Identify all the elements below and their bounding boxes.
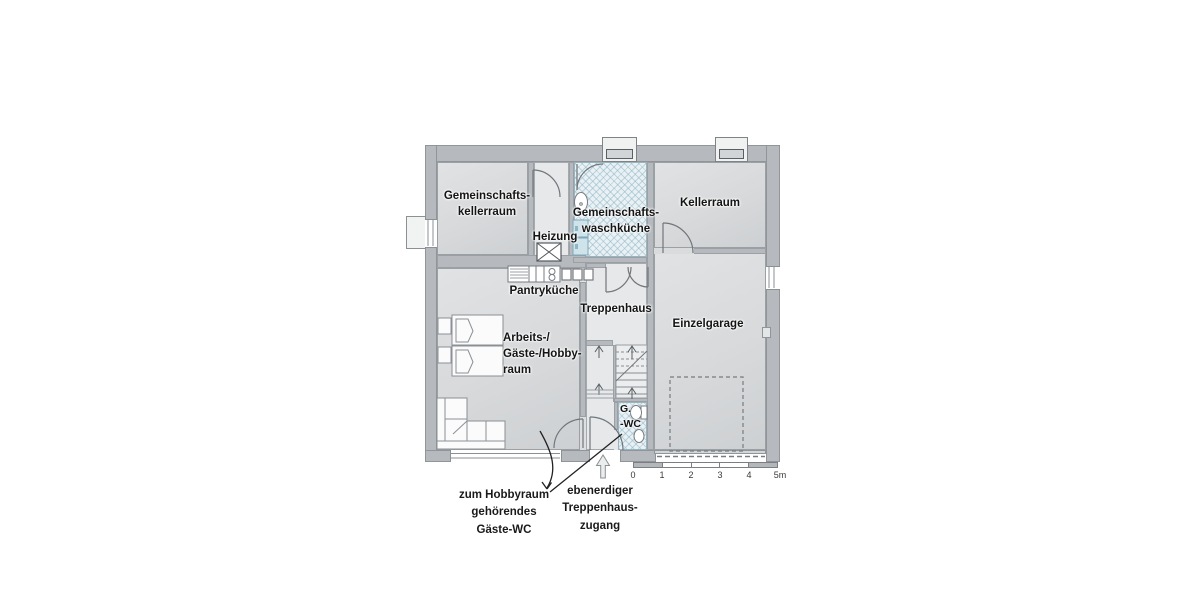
light-shaft-left [406,216,426,249]
room-label-heizung: Heizung [533,230,578,246]
scale-tick-2: 2 [688,470,693,480]
room-label-treppenhaus: Treppenhaus [580,302,652,318]
scale-bar [633,462,778,468]
scale-tick-4: 4 [746,470,751,480]
room-label-kellerraum: Kellerraum [680,196,740,212]
window-bottom [450,450,562,462]
scale-tick-1: 1 [659,470,664,480]
annotation-wc-note: zum Hobbyraum gehörendes Gäste-WC [459,487,549,539]
wall-stair-divider [613,345,616,402]
room-label-gaeste-wc: G. -WC [620,402,641,432]
scale-segment [692,463,721,467]
scale-tick-3: 3 [717,470,722,480]
wall-stair-stub [586,340,613,346]
wall-waschkueche-bottom [573,257,647,263]
wall-kellerraum-garage [654,248,766,254]
entrance-opening [590,450,620,462]
scale-tick-0: 0 [630,470,635,480]
annotation-entry-note: ebenerdiger Treppenhaus- zugang [562,483,637,535]
room-label-pantrykueche: Pantryküche [509,284,578,300]
garage-door-sill [654,450,766,454]
window-garage-right [766,266,780,290]
chimney-block-left [602,137,637,162]
chimney-band [606,149,633,159]
room-label-hobbyraum: Arbeits-/ Gäste-/Hobby- raum [503,330,582,378]
scale-segment [720,463,749,467]
wall-exterior-bottom-mid [620,450,656,462]
scale-segment [663,463,692,467]
window-left [425,219,437,248]
scale-tick-5m: 5m [774,470,787,480]
wall-wc-left [614,402,618,430]
wall-notch-right [762,327,771,338]
wall-treppenhaus-top [586,263,606,268]
chimney-band [719,149,744,159]
wall-upper-lower-divider [437,255,586,268]
wall-exterior-left [425,145,437,462]
floor-plan-page: Gemeinschafts- kellerraum Heizung Gemein… [0,0,1200,600]
room-label-gemeinschaftskellerraum: Gemeinschafts- kellerraum [444,189,530,221]
chimney-block-right [715,137,748,162]
room-heizung [534,162,569,262]
wall-exterior-right [766,145,780,462]
room-einzelgarage [654,253,766,450]
room-label-einzelgarage: Einzelgarage [673,317,744,333]
room-label-waschkueche: Gemeinschafts- waschküche [573,206,659,238]
scale-segment [634,463,663,467]
scale-segment [749,463,777,467]
